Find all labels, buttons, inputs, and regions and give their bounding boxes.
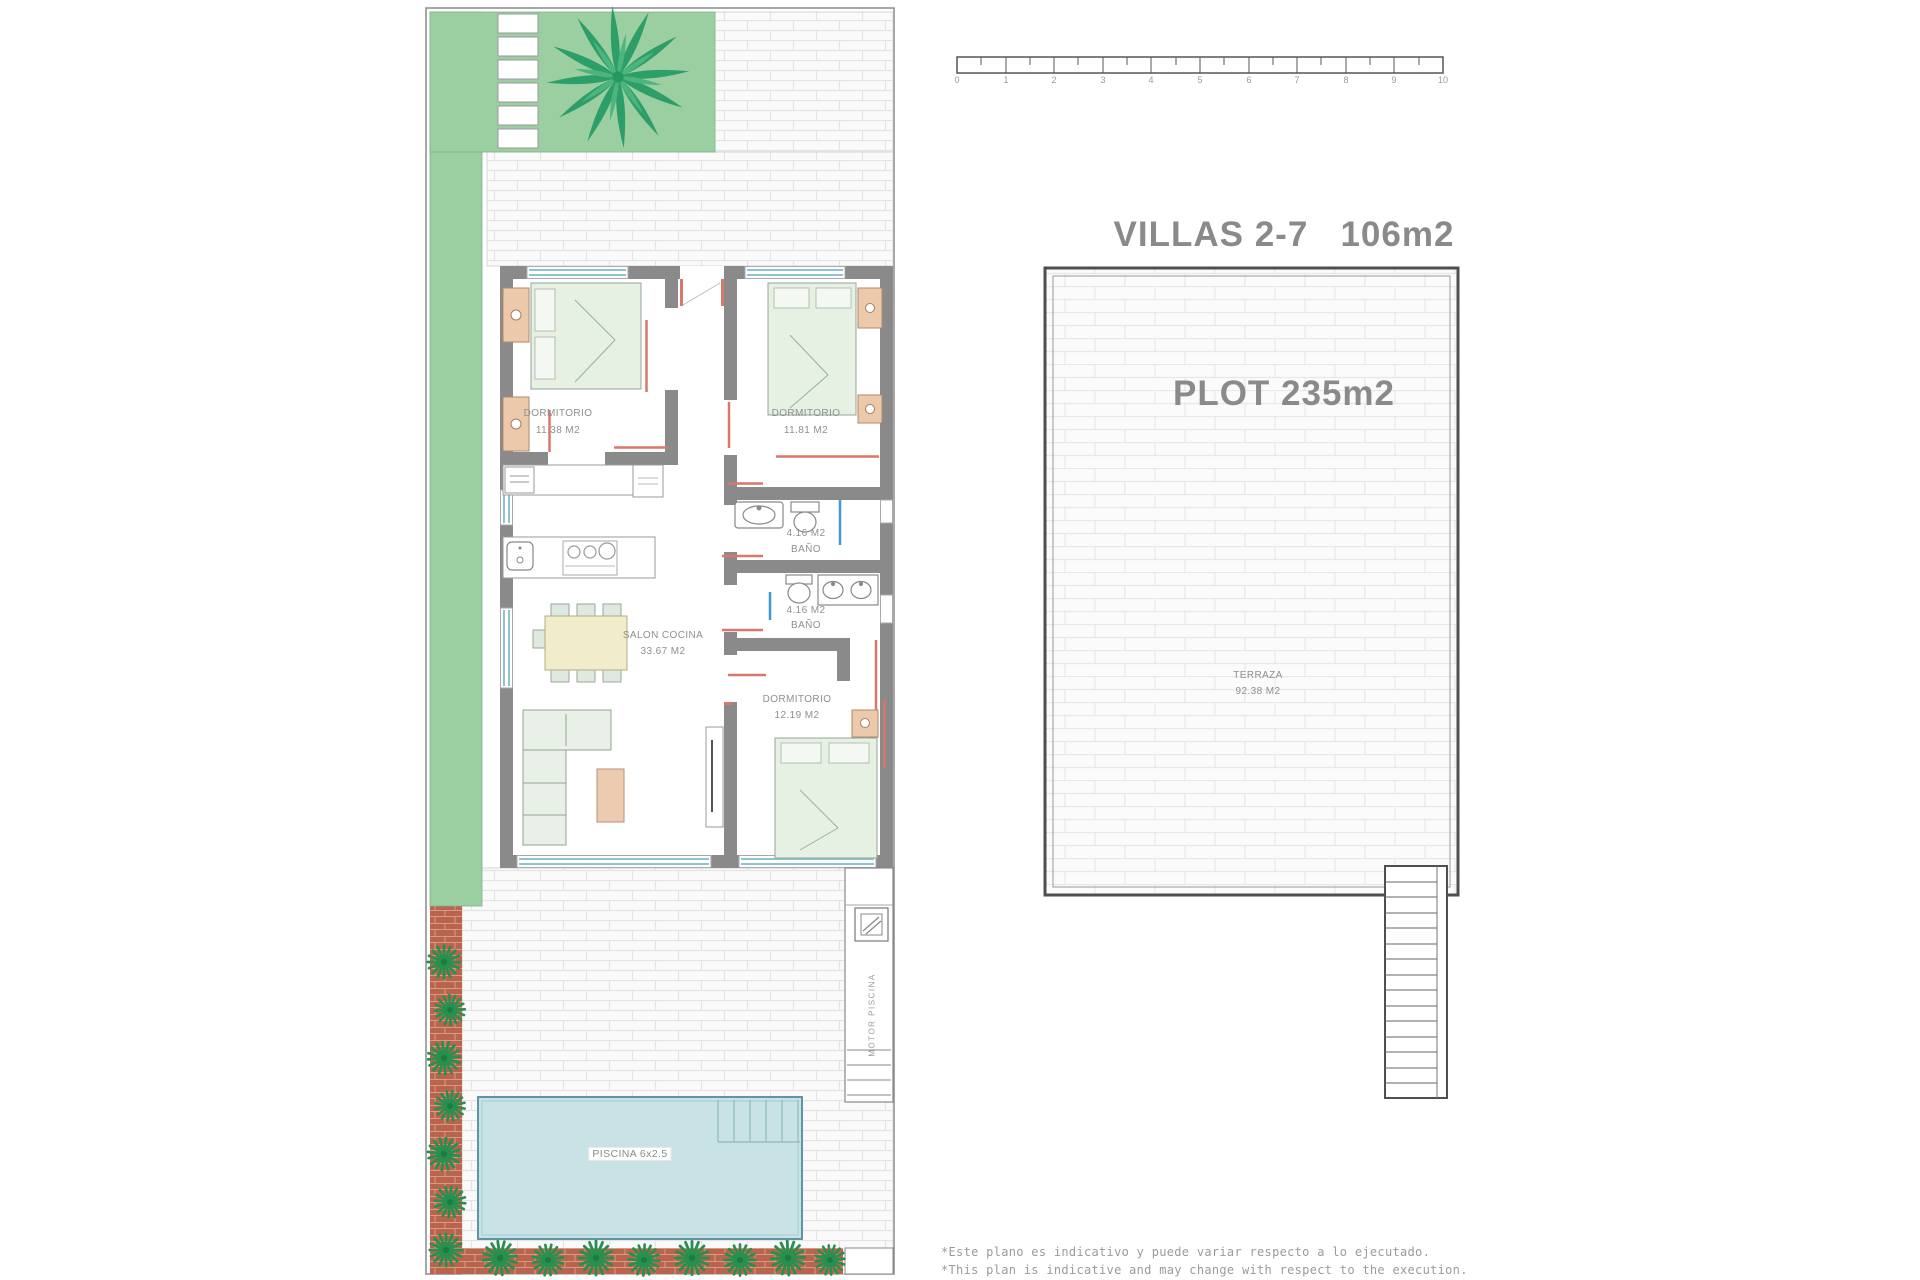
dining-table bbox=[545, 616, 627, 670]
room-area-dormitorio-1: 11.38 M2 bbox=[536, 424, 580, 437]
terrace-label: TERRAZA bbox=[1233, 669, 1282, 682]
room-area-dormitorio-3: 12.19 M2 bbox=[775, 709, 820, 722]
bathroom-2-fixtures bbox=[786, 575, 878, 605]
pump-equipment-icon bbox=[855, 908, 888, 941]
plan-drawing bbox=[0, 0, 1920, 1280]
room-area-bano-1: 4.16 M2 bbox=[787, 527, 826, 540]
room-area-bano-2: 4.16 M2 bbox=[787, 604, 826, 617]
room-area-dormitorio-2: 11.81 M2 bbox=[784, 424, 828, 437]
terrace-stairs bbox=[1385, 866, 1447, 1098]
scale-tick-label: 5 bbox=[1197, 75, 1202, 85]
room-label-dormitorio-1: DORMITORIO bbox=[524, 407, 593, 420]
sofa bbox=[523, 750, 566, 845]
wall-tip-mark bbox=[724, 702, 733, 705]
floor-plan-page: VILLAS 2-7 106m2 PLOT 235m2 0 1 2 3 4 5 … bbox=[0, 0, 1920, 1280]
scale-tick-label: 10 bbox=[1438, 75, 1448, 85]
drawing-title: VILLAS 2-7 106m2 PLOT 235m2 bbox=[1048, 102, 1520, 473]
pool-label: PISCINA 6x2.5 bbox=[588, 1147, 671, 1161]
dining-set bbox=[533, 604, 627, 682]
scale-tick-label: 6 bbox=[1246, 75, 1251, 85]
pool bbox=[478, 1097, 802, 1239]
scale-tick-label: 9 bbox=[1391, 75, 1396, 85]
disclaimer-line-1: *Este plano es indicativo y puede variar… bbox=[941, 1243, 1430, 1261]
toilet bbox=[791, 502, 819, 512]
pool-motor-label: MOTOR PISCINA bbox=[868, 973, 877, 1056]
scale-tick-label: 0 bbox=[954, 75, 959, 85]
terrace-area: 92.38 M2 bbox=[1236, 685, 1281, 698]
scale-tick-label: 2 bbox=[1051, 75, 1056, 85]
kitchen-sink bbox=[507, 542, 533, 570]
paved-path-top bbox=[715, 12, 893, 152]
disclaimer-line-2: *This plan is indicative and may change … bbox=[941, 1261, 1468, 1279]
scale-tick-label: 3 bbox=[1100, 75, 1105, 85]
room-label-dormitorio-2: DORMITORIO bbox=[772, 407, 841, 420]
title-line-2: PLOT 235m2 bbox=[1048, 367, 1520, 420]
room-label-bano-1: BAÑO bbox=[791, 543, 821, 556]
room-label-salon-cocina: SALON COCINA bbox=[623, 629, 703, 642]
title-line-1: VILLAS 2-7 106m2 bbox=[1048, 208, 1520, 261]
scale-tick-label: 4 bbox=[1148, 75, 1153, 85]
scale-tick-label: 7 bbox=[1294, 75, 1299, 85]
room-label-bano-2: BAÑO bbox=[791, 619, 821, 632]
pool-label-wrap: PISCINA 6x2.5 bbox=[588, 1148, 671, 1161]
sofa bbox=[523, 710, 611, 750]
scale-tick-label: 8 bbox=[1343, 75, 1348, 85]
corner-pad bbox=[845, 1248, 893, 1274]
scale-bar bbox=[957, 57, 1443, 73]
scale-tick-label: 1 bbox=[1003, 75, 1008, 85]
room-area-salon-cocina: 33.67 M2 bbox=[641, 645, 686, 658]
tv-unit bbox=[706, 727, 723, 827]
paved-entry-band bbox=[487, 152, 893, 266]
room-label-dormitorio-3: DORMITORIO bbox=[763, 693, 832, 706]
coffee-table bbox=[597, 769, 624, 822]
